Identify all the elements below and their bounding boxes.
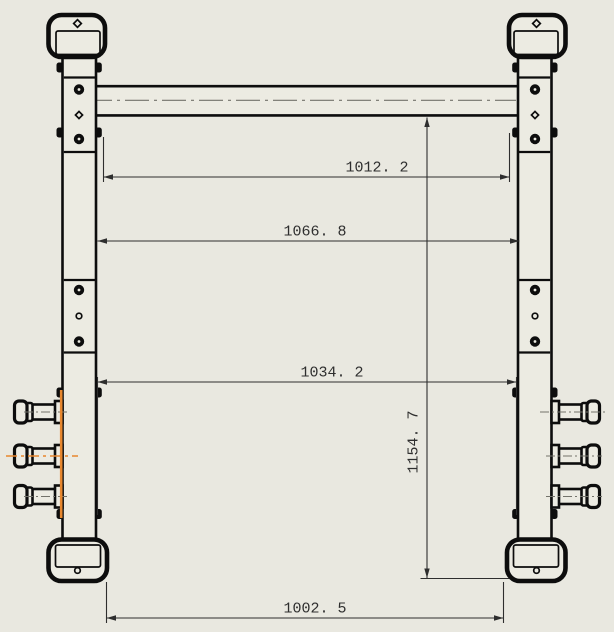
dimension-label[interactable]: 1002. 5: [283, 601, 346, 618]
dimension-label[interactable]: 1154. 7: [406, 410, 423, 473]
arrow-right-icon: [500, 174, 510, 179]
crossbeam[interactable]: [96, 86, 518, 115]
arrow-left-icon: [107, 615, 117, 620]
arrow-up-icon: [424, 118, 429, 128]
arrow-right-icon: [507, 379, 517, 384]
arrow-left-icon: [98, 379, 108, 384]
dimension-1034[interactable]: 1034. 2: [98, 365, 517, 516]
dimension-1066[interactable]: 1066. 8: [98, 224, 520, 244]
dimension-1012[interactable]: 1012. 2: [104, 133, 510, 182]
arrow-right-icon: [494, 615, 504, 620]
arrow-down-icon: [424, 569, 429, 579]
dimension-1154[interactable]: 1154. 7: [406, 118, 510, 579]
arrow-left-icon: [104, 174, 114, 179]
dimension-label[interactable]: 1066. 8: [283, 224, 346, 241]
dimension-label[interactable]: 1012. 2: [345, 160, 408, 177]
dimension-1002[interactable]: 1002. 5: [107, 582, 504, 623]
drawing-canvas: 1012. 2 1066. 8 1034. 2 1154. 7 1002. 5: [0, 0, 614, 632]
dimension-label[interactable]: 1034. 2: [300, 365, 363, 382]
arrow-left-icon: [98, 238, 108, 243]
